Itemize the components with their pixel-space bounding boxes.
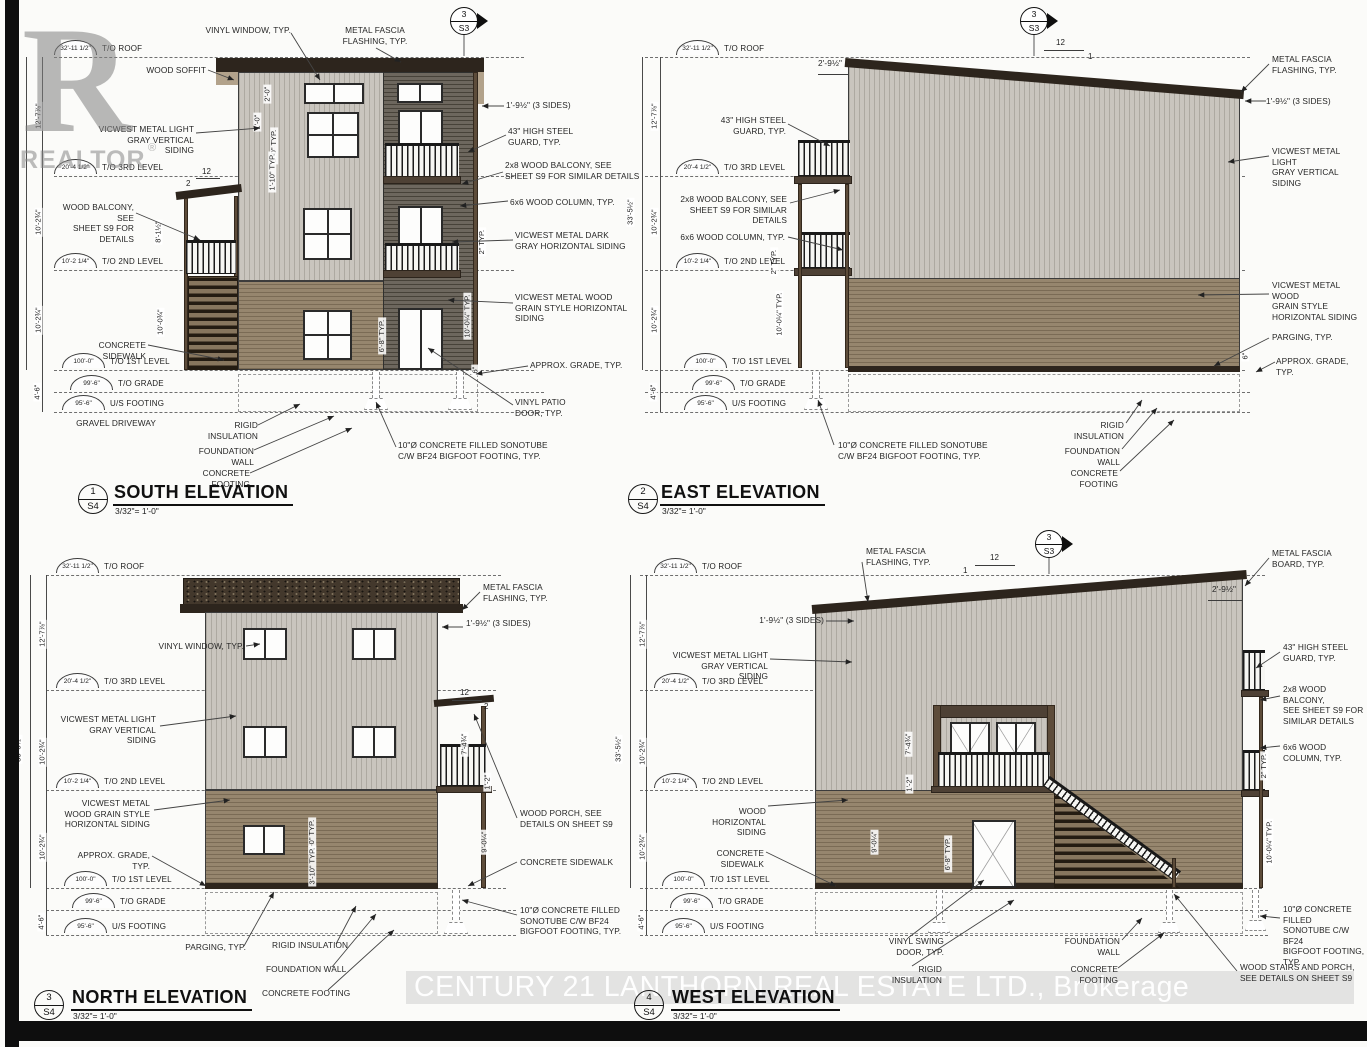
slope-run: 12 [990,553,999,562]
registered-mark: ® [148,142,156,154]
callout-gravel-driveway: GRAVEL DRIVEWAY [74,418,156,429]
level-line [54,412,544,413]
dim-line [642,57,643,370]
callout-approx-grade: APPROX. GRADE, TYP. [1276,356,1367,377]
callout-offset-dim: 1'-9½" (3 SIDES) [466,618,531,629]
patio-door [398,308,443,370]
foundation-outline [205,892,438,934]
level-marker: 32'-11 1/2"T/O ROOF [654,558,742,573]
sonotube-stem [1252,890,1259,918]
callout-vicwest-light: VICWEST METAL LIGHT GRAY VERTICAL SIDING [672,650,768,682]
slope-line [1044,50,1084,51]
window [352,726,396,758]
balcony-column [1259,697,1263,888]
dim-text: 7'-4¾" [904,732,912,757]
balcony-slab [383,270,461,278]
title-bubble-east: 2S4 [628,484,658,514]
callout-fascia-offset: 2'-9½" [1204,584,1244,595]
level-marker: 99'-6"T/O GRADE [70,375,164,390]
dim-text: 12'-7⅞" [639,619,647,648]
callout-parging: PARGING, TYP. [180,942,246,953]
balcony-column [798,184,802,368]
callout-rigid-insulation: RIGID INSULATION [186,420,258,441]
wall-siding-vertical [205,612,438,790]
parging-strip [848,366,1240,372]
callout-wood-balcony: WOOD BALCONY, SEE SHEET S9 FOR DETAILS [48,202,134,244]
callout-vinyl-window: VINYL WINDOW, TYP. [152,641,244,652]
level-marker: 10'-2 1/4"T/O 2ND LEVEL [654,773,763,788]
porch-header [933,705,1055,718]
swing-door [972,820,1016,888]
dim-text: 12'-7⅞" [39,619,47,648]
callout-vinyl-window: VINYL WINDOW, TYP. [205,25,291,36]
patio-door [398,206,443,248]
dim-text: 10'-2¾" [651,207,659,236]
dim-text: 12'-7⅞" [651,101,659,130]
dim-text: 2" TYP. [1260,752,1268,781]
roof-fascia [216,58,484,72]
title-bubble-north: 3S4 [34,990,64,1020]
scale-east: 3/32"= 1'-0" [662,506,706,516]
level-marker: 99'-6"T/O GRADE [72,893,166,908]
callout-foundation-wall: FOUNDATION WALL [182,446,254,467]
callout-fascia-offset: 2'-9½" [810,58,850,69]
level-marker: 95'-6"U/S FOOTING [64,918,166,933]
slope-line [975,565,1015,566]
callout-2x8-balcony: 2x8 WOOD BALCONY, SEE SHEET S9 FOR SIMIL… [665,194,787,226]
callout-offset-dim: 1'-9½" (3 SIDES) [1266,96,1331,107]
window [397,83,443,103]
window [303,310,352,360]
title-south: SOUTH ELEVATION [113,482,293,506]
dim-text: 6" [471,365,479,376]
level-line [54,370,534,371]
slope-line [196,178,220,179]
slope-rise: 1 [963,566,967,575]
dim-text: 9'-0¼" [480,830,488,855]
dim-text: 1'-2" [483,773,491,792]
balcony-railing [798,140,850,176]
callout-foundation-wall: FOUNDATION WALL [1046,936,1120,957]
dim-text: 8'-1½" [154,220,162,245]
callout-approx-grade: APPROX. GRADE, TYP. [530,360,622,371]
slope-run: 12 [1056,38,1065,47]
callout-rigid-insulation: RIGID INSULATION [1052,420,1124,441]
level-line [46,575,501,576]
dim-line [630,575,631,888]
callout-concrete-footing: CONCRETE FOOTING [262,988,350,999]
sonotube-stem [452,890,460,920]
title-east: EAST ELEVATION [660,482,825,506]
callout-sonotube: 10"Ø CONCRETE FILLED SONOTUBE C/W BF24 B… [838,440,988,461]
level-marker: 100'-0"T/O 1ST LEVEL [64,871,172,886]
callout-offset-dim: 1'-9½" (3 SIDES) [736,615,824,626]
corner-trim [473,72,478,370]
slope-rise: 1 [1088,52,1092,61]
foundation-outline [815,892,1243,934]
level-marker: 20'-4 1/2"T/O 3RD LEVEL [676,159,785,174]
sonotube-stem [1166,890,1173,920]
callout-metal-fascia: METAL FASCIA FLASHING, TYP. [866,546,931,567]
callout-sonotube: 10"Ø CONCRETE FILLED SONOTUBE C/W BF24 B… [520,905,621,937]
level-line [645,412,1250,413]
window [243,726,287,758]
sonotube-stem [812,372,820,398]
level-marker: 99'-6"T/O GRADE [670,893,764,908]
dim-text: 10'-2¾" [651,305,659,334]
slope-line [452,700,482,701]
sonotube-foot [1245,920,1266,931]
callout-rigid-insulation: RIGID INSULATION [272,940,348,951]
foundation-outline [238,374,478,412]
slope-rise: 2 [484,702,488,711]
callout-vinyl-patio-door: VINYL PATIO DOOR, TYP. [515,397,566,418]
callout-approx-grade: APPROX. GRADE, TYP. [60,850,150,871]
balcony-slab [1241,790,1269,797]
callout-vicwest-light: VICWEST METAL LIGHT GRAY VERTICAL SIDING [1272,146,1367,188]
dim-text: 6'-8" TYP. [378,318,386,355]
dim-text: 10'-2¾" [35,207,43,236]
dim-text: 1'-2" [905,775,913,794]
callout-metal-fascia: METAL FASCIA FLASHING, TYP. [483,582,548,603]
callout-wood-soffit: WOOD SOFFIT [130,65,206,76]
dim-text: 4'-6" [649,383,657,402]
level-line [640,935,1268,936]
callout-concrete-sidewalk: CONCRETE SIDEWALK [674,848,764,869]
roof-surface [183,578,460,606]
callout-2x8-balcony: 2x8 WOOD BALCONY, SEE SHEET S9 FOR SIMIL… [505,160,639,181]
dim-text: 1'-10" TYP. [268,152,276,193]
stairs-side [188,276,238,370]
window [307,112,359,158]
elevation-drawing-sheet: { "sheet": { "watermark_r": "R", "waterm… [0,0,1367,1047]
dim-text: 6" [1241,351,1249,362]
sonotube-stem [372,372,380,398]
callout-wood-column: 6x6 WOOD COLUMN, TYP. [673,232,785,243]
balcony-column [845,184,849,368]
sheet-border-bottom [5,1021,1367,1041]
dim-text: 10'-2¾" [639,832,647,861]
callout-metal-fascia: METAL FASCIA FLASHING, TYP. [334,25,416,46]
realtor-text-watermark: REALTOR [20,146,146,175]
window [243,825,285,855]
balcony-railing [385,243,459,271]
scale-south: 3/32"= 1'-0" [115,506,159,516]
dim-line [660,57,661,412]
sheet-border-left [5,0,19,1047]
foundation-outline [848,374,1240,412]
callout-foundation-wall: FOUNDATION WALL [266,964,346,975]
callout-steel-guard: 43" HIGH STEEL GUARD, TYP. [508,126,573,147]
callout-vicwest-wood: VICWEST METAL WOOD GRAIN STYLE HORIZONTA… [1272,280,1367,322]
window [304,83,364,104]
wall-siding-woodgrain [205,790,438,884]
dim-tick [818,74,848,75]
sonotube-foot [804,398,828,410]
dim-text: 2" TYP. [478,228,486,257]
callout-concrete-sidewalk: CONCRETE SIDEWALK [520,857,613,868]
dim-text: 1'-0" [253,113,261,132]
callout-wood-column: 6x6 WOOD COLUMN, TYP. [1283,742,1367,763]
level-line [46,935,516,936]
porch-railing [938,752,1050,788]
dim-line [30,575,31,888]
level-marker: 99'-6"T/O GRADE [692,375,786,390]
level-marker: 32'-11 1/2"T/O ROOF [56,558,144,573]
dim-text: 2'-0" [263,85,271,104]
level-marker: 32'-11 1/2"T/O ROOF [676,40,764,55]
balcony-slab [1241,690,1269,697]
title-bubble-west: 4S4 [634,990,664,1020]
level-marker: 95'-6"U/S FOOTING [684,395,786,410]
sonotube-stem [936,890,943,920]
section-marker: 3S3 [1035,530,1063,558]
wall-siding-woodgrain [848,278,1240,368]
callout-concrete-footing: CONCRETE FOOTING [1040,468,1118,489]
parging-strip [815,883,1243,889]
balcony-slab [383,176,461,184]
balcony-slab [794,176,852,184]
level-marker: 10'-2 1/4"T/O 2ND LEVEL [56,773,165,788]
sonotube-stem [456,372,464,398]
stair-post [1172,858,1176,888]
callout-vinyl-swing-door: VINYL SWING DOOR, TYP. [860,936,944,957]
callout-vicwest-dark: VICWEST METAL DARK GRAY HORIZONTAL SIDIN… [515,230,626,251]
slope-run: 12 [202,167,211,176]
balcony-slab [794,268,852,276]
callout-vicwest-wood: VICWEST METAL WOOD GRAIN STYLE HORIZONTA… [56,798,150,830]
window [243,628,287,660]
callout-wood-porch: WOOD PORCH, SEE DETAILS ON SHEET S9 [520,808,613,829]
level-marker: 95'-6"U/S FOOTING [662,918,764,933]
level-marker: 100'-0"T/O 1ST LEVEL [662,871,770,886]
sonotube-foot [444,922,468,934]
dim-text: 3'-10" TYP. [308,846,316,887]
dim-text: 10'-2¾" [639,737,647,766]
section-marker: 3S3 [1020,7,1048,35]
title-north: NORTH ELEVATION [71,987,252,1011]
level-marker: 10'-2 1/4"T/O 2ND LEVEL [676,253,785,268]
callout-foundation-wall: FOUNDATION WALL [1046,446,1120,467]
callout-wood-column: 6x6 WOOD COLUMN, TYP. [510,197,615,208]
dim-text: 10'-0¼" TYP. [463,293,471,340]
dim-text: 33'-5½" [627,197,635,226]
callout-sonotube: 10"Ø CONCRETE FILLED SONOTUBE C/W BF24 B… [1283,904,1367,968]
callout-concrete-sidewalk: CONCRETE SIDEWALK [56,340,146,361]
dim-tick [1208,600,1242,601]
level-marker: 95'-6"U/S FOOTING [62,395,164,410]
callout-vicwest-wood: VICWEST METAL WOOD GRAIN STYLE HORIZONTA… [515,292,627,324]
window [303,208,352,260]
dim-text: 6'-8" TYP. [944,836,952,873]
porch-post [481,706,486,888]
porch-railing [186,240,236,274]
scale-west: 3/32"= 1'-0" [673,1011,717,1021]
level-line [645,57,1250,58]
dim-text: 9'-0¼" [870,830,878,855]
dim-text: 4'-6" [33,383,41,402]
callout-steel-guard: 43" HIGH STEEL GUARD, TYP. [700,115,786,136]
level-marker: 10'-2 1/4"T/O 2ND LEVEL [54,253,163,268]
dim-text: 33'-5½" [615,734,623,763]
dim-text: 10'-0¼" TYP. [1265,819,1273,866]
dim-text: 10'-0¼" TYP. [775,291,783,338]
dim-text: 7'-4¾" [460,732,468,757]
dim-text: 4'-6" [637,913,645,932]
balcony-railing [1243,650,1265,690]
slope-rise: 2 [186,179,190,188]
callout-sonotube: 10"Ø CONCRETE FILLED SONOTUBE C/W BF24 B… [398,440,548,461]
dim-text: 10'-2¾" [39,832,47,861]
callout-parging: PARGING, TYP. [1272,332,1333,343]
dim-text: 10'-0¾" [157,307,165,336]
level-marker: 100'-0"T/O 1ST LEVEL [684,353,792,368]
window [352,628,396,660]
title-west: WEST ELEVATION [671,987,840,1011]
balcony-railing [385,143,459,177]
callout-wood-horizontal: WOOD HORIZONTAL SIDING [688,806,766,838]
dim-text: 4'-6" [37,913,45,932]
callout-2x8-balcony: 2x8 WOOD BALCONY, SEE SHEET S9 FOR SIMIL… [1283,684,1367,726]
slope-run: 12 [460,688,469,697]
dim-text: 10'-2¾" [39,737,47,766]
callout-concrete-footing: CONCRETE FOOTING [1040,964,1118,985]
porch-slab [931,786,1057,793]
title-bubble-south: 1S4 [78,484,108,514]
realtor-logo-watermark: R [22,8,132,152]
callout-offset-dim: 1'-9½" (3 SIDES) [506,100,571,111]
parging-strip [205,883,438,889]
callout-vicwest-light: VICWEST METAL LIGHT GRAY VERTICAL SIDING [60,714,156,746]
level-marker: 20'-4 1/2"T/O 3RD LEVEL [56,673,165,688]
dim-text: 10'-2¾" [35,305,43,334]
section-marker: 3S3 [450,7,478,35]
callout-steel-guard: 43" HIGH STEEL GUARD, TYP. [1283,642,1348,663]
scale-north: 3/32"= 1'-0" [73,1011,117,1021]
callout-metal-fascia: METAL FASCIA FLASHING, TYP. [1272,54,1337,75]
callout-metal-fascia-board: METAL FASCIA BOARD, TYP. [1272,548,1332,569]
callout-rigid-insulation: RIGID INSULATION [870,964,942,985]
balcony-railing [798,232,850,268]
